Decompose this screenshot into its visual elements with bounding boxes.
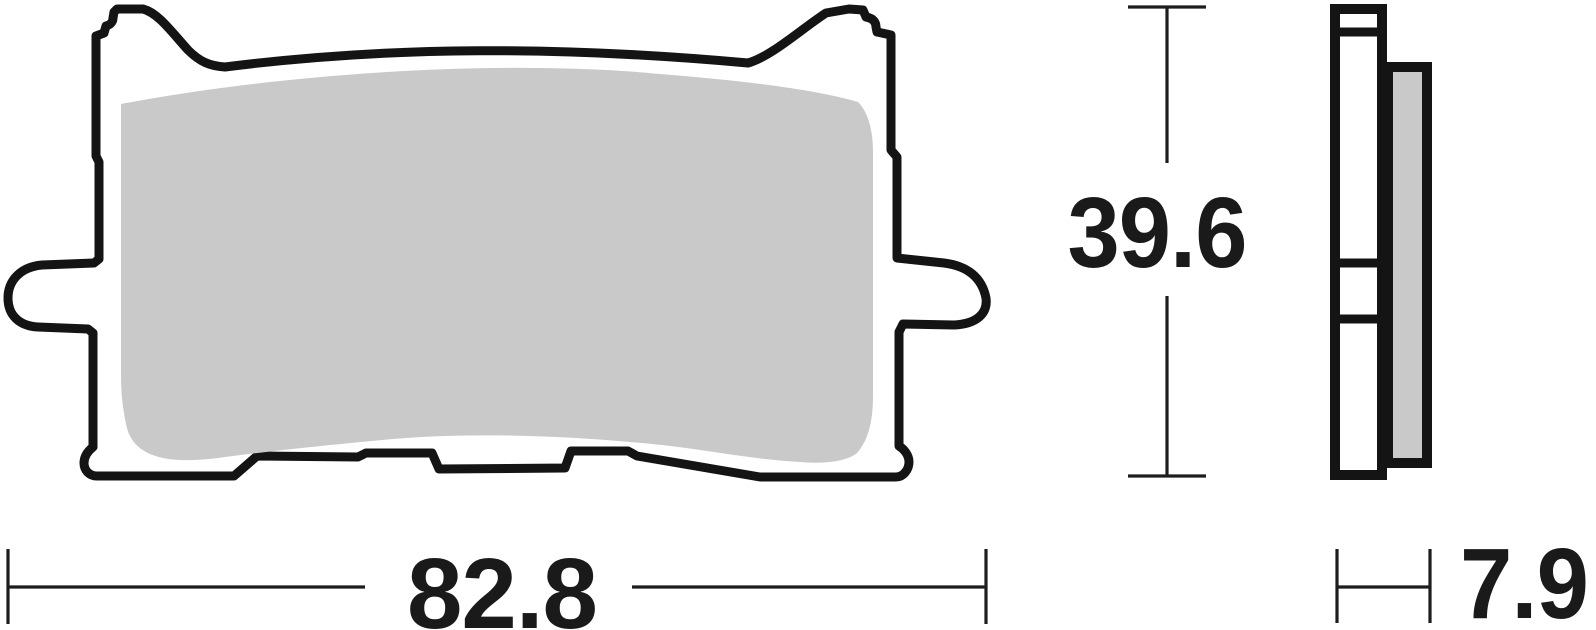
height-dimension-label: 39.6 <box>1068 177 1247 289</box>
front-view <box>8 9 986 477</box>
width-dimension: 82.8 <box>8 538 986 630</box>
thickness-dimension: 7.9 <box>1337 528 1588 630</box>
technical-drawing: 82.8 39.6 7.9 <box>0 0 1596 630</box>
height-dimension: 39.6 <box>1068 7 1247 476</box>
front-friction-material <box>121 68 873 463</box>
side-backplate-outline <box>1335 9 1382 475</box>
drawing-canvas: 82.8 39.6 7.9 <box>0 0 1596 630</box>
thickness-dimension-label: 7.9 <box>1460 528 1588 630</box>
width-dimension-label: 82.8 <box>407 538 597 630</box>
side-view <box>1335 9 1427 475</box>
side-friction-material <box>1388 67 1427 463</box>
